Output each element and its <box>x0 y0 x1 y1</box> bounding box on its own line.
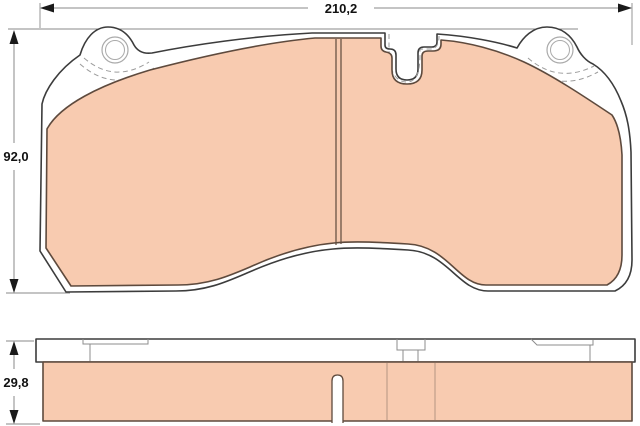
thickness-arrow-top <box>10 341 19 355</box>
drawing-svg: 210,2 92,0 29,8 <box>0 0 640 426</box>
thickness-dimension: 29,8 <box>3 341 28 424</box>
height-dimension-label: 92,0 <box>3 149 28 164</box>
height-arrow-top <box>10 30 19 44</box>
thickness-dimension-label: 29,8 <box>3 375 28 390</box>
height-arrow-bottom <box>10 279 19 293</box>
backplate-side <box>36 339 635 362</box>
side-view <box>36 339 635 423</box>
width-arrow-left <box>40 4 54 13</box>
width-dimension-label: 210,2 <box>325 1 358 16</box>
centre-slot-side <box>332 375 343 423</box>
brake-pad-technical-drawing: 210,2 92,0 29,8 <box>0 0 640 426</box>
width-dimension: 210,2 <box>40 1 632 16</box>
thickness-arrow-bottom <box>10 410 19 424</box>
front-view <box>40 27 632 292</box>
width-arrow-right <box>618 4 632 13</box>
height-dimension: 92,0 <box>3 30 28 293</box>
